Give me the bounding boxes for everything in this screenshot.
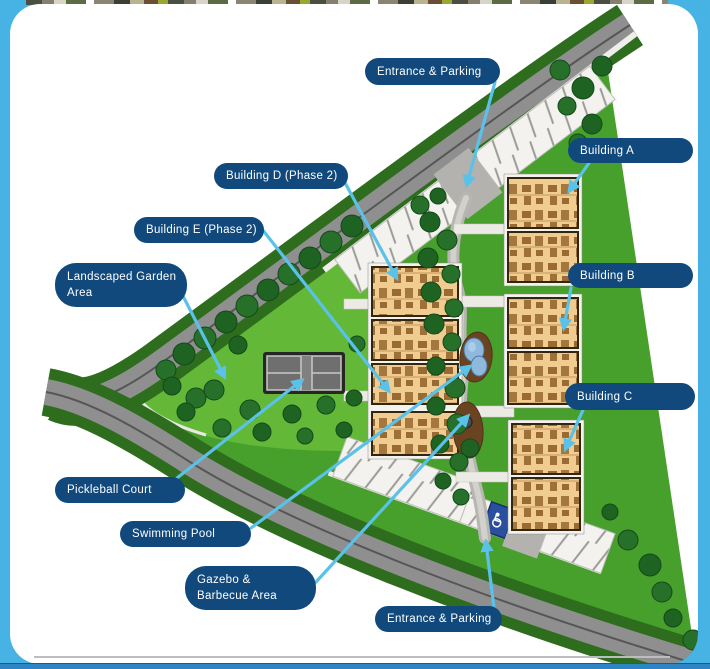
callout-entrance-parking-bottom: Entrance & Parking xyxy=(375,606,502,632)
building-c-shape xyxy=(508,420,584,534)
building-d-e-shape xyxy=(368,263,462,459)
callout-landscaped-garden: Landscaped Garden Area xyxy=(55,263,187,307)
callout-swimming-pool: Swimming Pool xyxy=(120,521,251,547)
callout-building-d: Building D (Phase 2) xyxy=(214,163,348,189)
callout-entrance-parking-top: Entrance & Parking xyxy=(365,58,500,85)
callout-landscaped-garden-line1: Landscaped Garden xyxy=(67,269,176,285)
callout-gazebo-line2: Barbecue Area xyxy=(197,588,277,604)
callout-gazebo-barbecue: Gazebo & Barbecue Area xyxy=(185,566,316,610)
callout-building-a: Building A xyxy=(568,138,693,163)
site-plan-svg xyxy=(10,4,698,664)
callout-gazebo-line1: Gazebo & xyxy=(197,572,251,588)
footer-divider-line xyxy=(34,656,670,658)
callout-building-b: Building B xyxy=(568,263,693,288)
slide-stage: Entrance & Parking Building A Building D… xyxy=(0,0,710,669)
callout-building-c: Building C xyxy=(565,383,695,410)
site-plan-card: Entrance & Parking Building A Building D… xyxy=(10,4,698,664)
pickleball-court-shape xyxy=(263,352,345,394)
callout-building-e: Building E (Phase 2) xyxy=(134,217,264,243)
callout-pickleball-court: Pickleball Court xyxy=(55,477,185,503)
bottom-accent-bar xyxy=(0,663,710,669)
callout-landscaped-garden-line2: Area xyxy=(67,285,93,301)
